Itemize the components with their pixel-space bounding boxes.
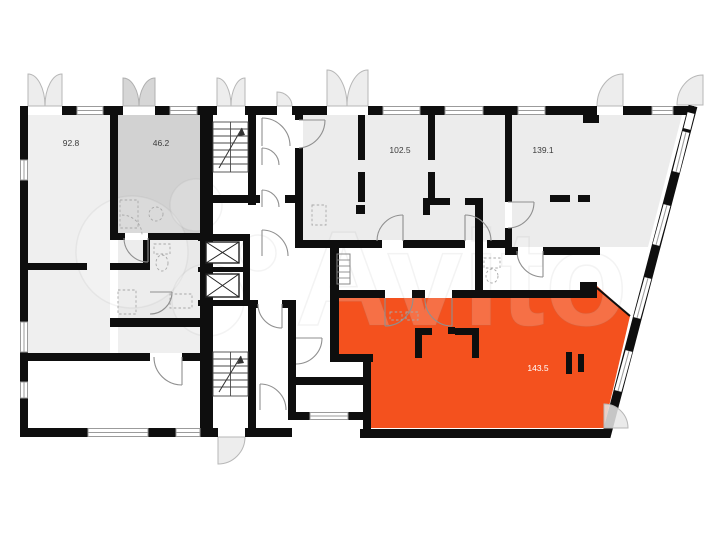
floorplan-canvas: Avito <box>0 0 720 540</box>
staircase-top <box>213 122 248 172</box>
balcony-door-icon <box>45 74 62 106</box>
facade-door-icon <box>604 404 628 428</box>
balcony-door-icon <box>123 78 139 106</box>
balcony-door-icon <box>277 92 292 106</box>
watermark-logo-circle-small <box>170 179 222 231</box>
room-92-8-label: 92.8 <box>63 138 80 148</box>
hall-block-fill <box>118 327 200 353</box>
balcony-door-icon <box>677 75 703 105</box>
room-102-5-label: 102.5 <box>389 145 411 155</box>
floorplan-svg: Avito <box>0 0 720 540</box>
staircase-bottom <box>213 352 248 396</box>
balcony-door-icon <box>217 78 231 106</box>
room-143-5-label: 143.5 <box>527 363 549 373</box>
balcony-door-icon <box>231 78 245 106</box>
balcony-door-icon <box>327 70 347 106</box>
balcony-door-icon <box>597 74 623 106</box>
balcony-door-icon <box>347 70 368 106</box>
balcony-door-icon <box>139 78 155 106</box>
room-46-2-label: 46.2 <box>153 138 170 148</box>
room-139-1-label: 139.1 <box>532 145 554 155</box>
balcony-door-icon <box>28 74 45 106</box>
exit-door-icon <box>218 437 245 464</box>
